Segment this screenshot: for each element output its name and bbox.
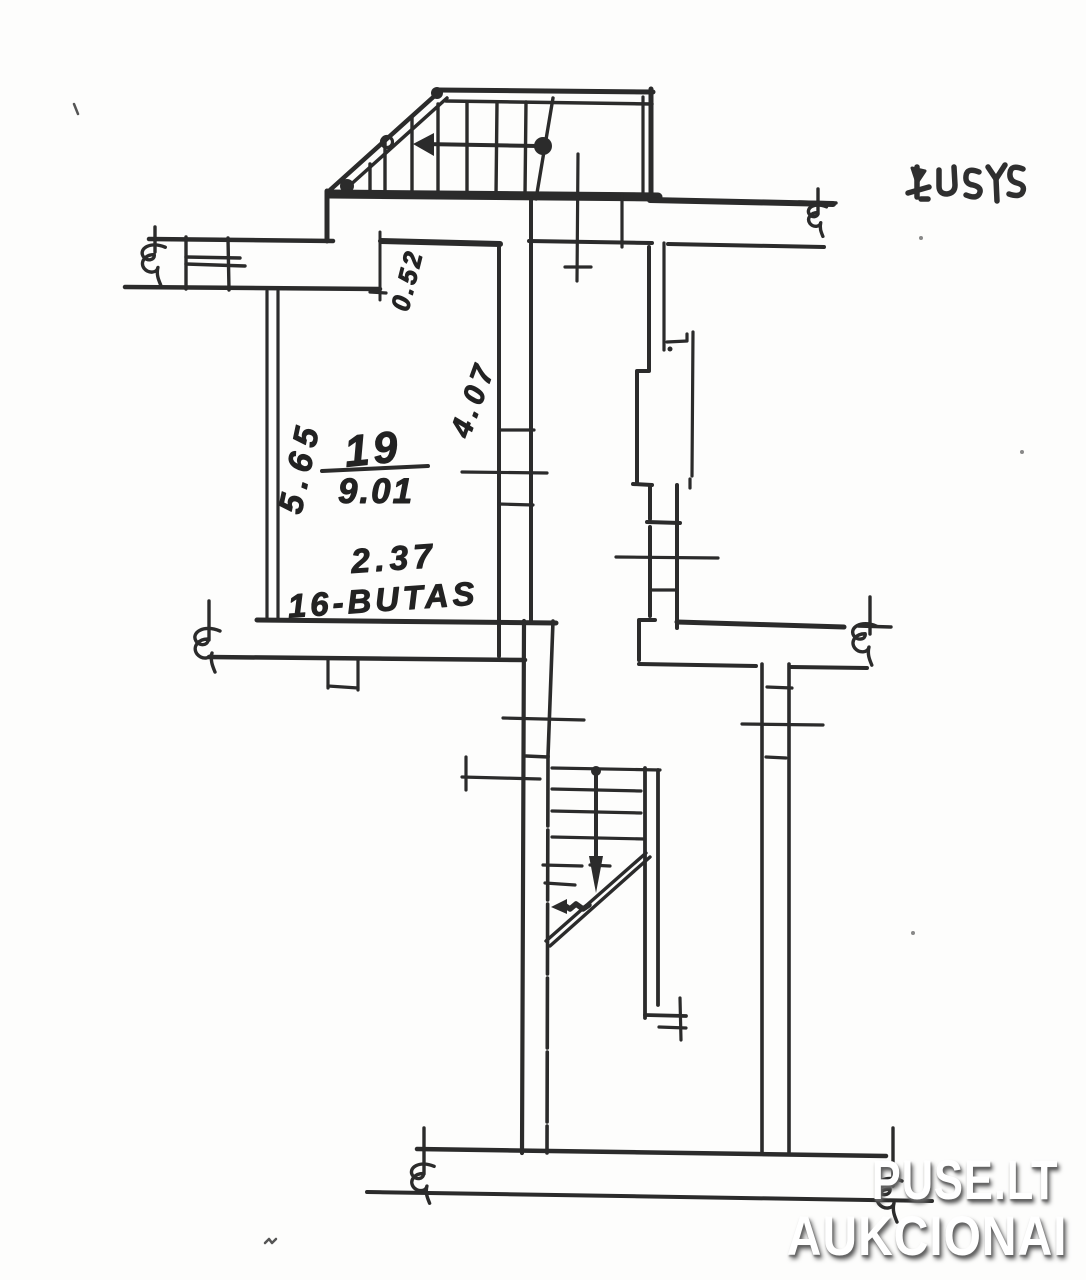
svg-text:0.52: 0.52 <box>385 246 429 314</box>
svg-text:2.37: 2.37 <box>349 537 439 581</box>
svg-text:5.65: 5.65 <box>272 417 329 517</box>
svg-text:16-BUTAS: 16-BUTAS <box>287 574 480 624</box>
svg-text:9.01: 9.01 <box>338 472 414 511</box>
svg-text:4.07: 4.07 <box>444 357 502 443</box>
